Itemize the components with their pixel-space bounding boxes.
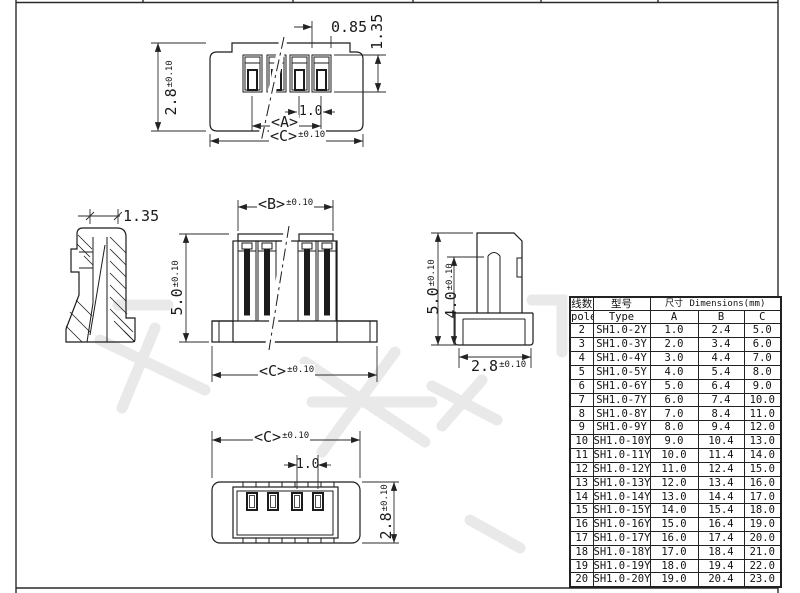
cell-type: SH1.0-20Y xyxy=(593,573,650,587)
dim-label-height-right: 5.0±0.10 xyxy=(426,256,442,318)
left-section-view-drawing xyxy=(66,228,135,342)
dim-label-pitch-bottom: 1.0 xyxy=(295,458,320,472)
cell-poles: 18 xyxy=(570,545,593,559)
cell-type: SH1.0-8Y xyxy=(593,407,650,421)
cell-dim-a: 3.0 xyxy=(650,351,698,365)
cell-type: SH1.0-11Y xyxy=(593,448,650,462)
cell-poles: 6 xyxy=(570,379,593,393)
section-hatching xyxy=(66,235,135,342)
cell-dim-b: 14.4 xyxy=(698,490,744,504)
cell-dim-b: 5.4 xyxy=(698,365,744,379)
cell-dim-c: 10.0 xyxy=(744,393,781,407)
cell-dim-c: 9.0 xyxy=(744,379,781,393)
dim-label-c-bottom: <C>±0.10 xyxy=(253,430,310,446)
cell-poles: 15 xyxy=(570,504,593,518)
cell-poles: 19 xyxy=(570,559,593,573)
spec-table-row: 13 SH1.0-13Y 12.0 13.4 16.0 xyxy=(570,476,781,490)
spec-table: 线数 型号 尺寸 Dimensions(mm) poles Type A B C… xyxy=(569,296,782,588)
cell-dim-c: 14.0 xyxy=(744,448,781,462)
spec-table-row: 19 SH1.0-19Y 18.0 19.4 22.0 xyxy=(570,559,781,573)
spec-table-row: 18 SH1.0-18Y 17.0 18.4 21.0 xyxy=(570,545,781,559)
dim-label-pin-height-top: 1.35 xyxy=(370,13,386,51)
cell-dim-b: 20.4 xyxy=(698,573,744,587)
cell-poles: 8 xyxy=(570,407,593,421)
cell-dim-c: 21.0 xyxy=(744,545,781,559)
cell-poles: 14 xyxy=(570,490,593,504)
spec-table-row: 20 SH1.0-20Y 19.0 20.4 23.0 xyxy=(570,573,781,587)
spec-table-body: 2 SH1.0-2Y 1.0 2.4 5.0 3 SH1.0-3Y 2.0 3.… xyxy=(570,324,781,587)
cell-dim-a: 4.0 xyxy=(650,365,698,379)
cell-dim-b: 13.4 xyxy=(698,476,744,490)
cell-dim-a: 9.0 xyxy=(650,435,698,449)
cell-dim-c: 17.0 xyxy=(744,490,781,504)
cell-type: SH1.0-16Y xyxy=(593,518,650,532)
cell-dim-c: 5.0 xyxy=(744,324,781,338)
cell-dim-a: 2.0 xyxy=(650,338,698,352)
cell-dim-b: 19.4 xyxy=(698,559,744,573)
cell-poles: 4 xyxy=(570,351,593,365)
cell-dim-c: 15.0 xyxy=(744,462,781,476)
spec-table-row: 5 SH1.0-5Y 4.0 5.4 8.0 xyxy=(570,365,781,379)
cell-type: SH1.0-15Y xyxy=(593,504,650,518)
spec-table-row: 7 SH1.0-7Y 6.0 7.4 10.0 xyxy=(570,393,781,407)
cell-dim-b: 6.4 xyxy=(698,379,744,393)
cell-dim-c: 23.0 xyxy=(744,573,781,587)
cell-type: SH1.0-12Y xyxy=(593,462,650,476)
cell-dim-a: 12.0 xyxy=(650,476,698,490)
cell-dim-b: 9.4 xyxy=(698,421,744,435)
left-view-dimensions xyxy=(78,209,122,224)
spec-table-row: 10 SH1.0-10Y 9.0 10.4 13.0 xyxy=(570,435,781,449)
spec-table-row: 2 SH1.0-2Y 1.0 2.4 5.0 xyxy=(570,324,781,338)
cell-dim-c: 13.0 xyxy=(744,435,781,449)
cell-poles: 12 xyxy=(570,462,593,476)
cell-type: SH1.0-6Y xyxy=(593,379,650,393)
cell-type: SH1.0-9Y xyxy=(593,421,650,435)
cell-dim-b: 8.4 xyxy=(698,407,744,421)
cell-dim-a: 13.0 xyxy=(650,490,698,504)
cell-poles: 11 xyxy=(570,448,593,462)
cell-dim-a: 15.0 xyxy=(650,518,698,532)
cell-dim-c: 22.0 xyxy=(744,559,781,573)
cell-dim-b: 4.4 xyxy=(698,351,744,365)
cell-dim-c: 7.0 xyxy=(744,351,781,365)
spec-table-row: 17 SH1.0-17Y 16.0 17.4 20.0 xyxy=(570,531,781,545)
bottom-view-drawing xyxy=(212,482,360,543)
dim-label-pin-width-top: 0.85 xyxy=(330,20,368,36)
cell-dim-c: 8.0 xyxy=(744,365,781,379)
spec-table-row: 15 SH1.0-15Y 14.0 15.4 18.0 xyxy=(570,504,781,518)
dim-label-b-front: <B>±0.10 xyxy=(257,197,314,213)
cell-dim-c: 20.0 xyxy=(744,531,781,545)
watermark xyxy=(100,300,562,548)
header-col-b: B xyxy=(698,310,744,323)
cell-poles: 2 xyxy=(570,324,593,338)
dim-label-depth-bottom: 2.8±0.10 xyxy=(379,481,395,543)
cell-type: SH1.0-17Y xyxy=(593,531,650,545)
dim-label-c-top: <C>±0.10 xyxy=(269,129,326,145)
cell-poles: 7 xyxy=(570,393,593,407)
cell-type: SH1.0-13Y xyxy=(593,476,650,490)
header-dimensions: 尺寸 Dimensions(mm) xyxy=(650,297,781,310)
dim-label-pitch-top: 1.0 xyxy=(298,105,323,119)
front-view-drawing xyxy=(212,226,377,350)
spec-table-row: 4 SH1.0-4Y 3.0 4.4 7.0 xyxy=(570,351,781,365)
header-col-c: C xyxy=(744,310,781,323)
cell-poles: 10 xyxy=(570,435,593,449)
cell-dim-c: 18.0 xyxy=(744,504,781,518)
cell-dim-a: 18.0 xyxy=(650,559,698,573)
cell-type: SH1.0-5Y xyxy=(593,365,650,379)
cell-dim-a: 1.0 xyxy=(650,324,698,338)
dim-label-height-front: 5.0±0.10 xyxy=(170,257,186,319)
cell-dim-b: 11.4 xyxy=(698,448,744,462)
cell-dim-c: 16.0 xyxy=(744,476,781,490)
cell-dim-c: 19.0 xyxy=(744,518,781,532)
cell-dim-c: 12.0 xyxy=(744,421,781,435)
cell-dim-a: 19.0 xyxy=(650,573,698,587)
cell-dim-b: 7.4 xyxy=(698,393,744,407)
cell-poles: 5 xyxy=(570,365,593,379)
cell-dim-a: 5.0 xyxy=(650,379,698,393)
engineering-drawing-sheet: 0.85 1.35 2.8±0.10 1.0 <A> <C>±0.10 1.35… xyxy=(0,0,800,593)
cell-type: SH1.0-2Y xyxy=(593,324,650,338)
cell-dim-b: 18.4 xyxy=(698,545,744,559)
cell-dim-a: 14.0 xyxy=(650,504,698,518)
cell-poles: 16 xyxy=(570,518,593,532)
cell-poles: 20 xyxy=(570,573,593,587)
header-col-a: A xyxy=(650,310,698,323)
cell-dim-b: 15.4 xyxy=(698,504,744,518)
cell-poles: 13 xyxy=(570,476,593,490)
dim-label-width-left-view: 1.35 xyxy=(122,209,160,225)
cell-dim-a: 10.0 xyxy=(650,448,698,462)
cell-type: SH1.0-14Y xyxy=(593,490,650,504)
right-side-view-drawing xyxy=(455,233,533,345)
header-type-zh: 型号 xyxy=(593,297,650,310)
cell-type: SH1.0-19Y xyxy=(593,559,650,573)
spec-header-row-1: 线数 型号 尺寸 Dimensions(mm) xyxy=(570,297,781,310)
cell-dim-c: 11.0 xyxy=(744,407,781,421)
cell-type: SH1.0-3Y xyxy=(593,338,650,352)
cell-poles: 9 xyxy=(570,421,593,435)
cell-dim-b: 3.4 xyxy=(698,338,744,352)
dim-label-inner-height-right: 4.0±0.10 xyxy=(444,260,460,322)
cell-type: SH1.0-10Y xyxy=(593,435,650,449)
cell-dim-a: 16.0 xyxy=(650,531,698,545)
cell-dim-c: 6.0 xyxy=(744,338,781,352)
spec-table-row: 8 SH1.0-8Y 7.0 8.4 11.0 xyxy=(570,407,781,421)
header-type-en: Type xyxy=(593,310,650,323)
cell-dim-b: 16.4 xyxy=(698,518,744,532)
cell-dim-b: 12.4 xyxy=(698,462,744,476)
cell-dim-a: 11.0 xyxy=(650,462,698,476)
spec-table-row: 6 SH1.0-6Y 5.0 6.4 9.0 xyxy=(570,379,781,393)
cell-dim-a: 6.0 xyxy=(650,393,698,407)
cell-dim-b: 10.4 xyxy=(698,435,744,449)
spec-table-row: 3 SH1.0-3Y 2.0 3.4 6.0 xyxy=(570,338,781,352)
spec-table-row: 16 SH1.0-16Y 15.0 16.4 19.0 xyxy=(570,518,781,532)
spec-table-row: 14 SH1.0-14Y 13.0 14.4 17.0 xyxy=(570,490,781,504)
cell-dim-a: 8.0 xyxy=(650,421,698,435)
cell-dim-b: 17.4 xyxy=(698,531,744,545)
cell-dim-a: 7.0 xyxy=(650,407,698,421)
dim-label-c-front: <C>±0.10 xyxy=(258,364,315,380)
header-poles-en: poles xyxy=(570,310,593,323)
spec-header-row-2: poles Type A B C xyxy=(570,310,781,323)
cell-poles: 17 xyxy=(570,531,593,545)
spec-table-row: 11 SH1.0-11Y 10.0 11.4 14.0 xyxy=(570,448,781,462)
cell-dim-b: 2.4 xyxy=(698,324,744,338)
cell-poles: 3 xyxy=(570,338,593,352)
header-poles-zh: 线数 xyxy=(570,297,593,310)
spec-table-row: 9 SH1.0-9Y 8.0 9.4 12.0 xyxy=(570,421,781,435)
dim-label-depth-right: 2.8±0.10 xyxy=(470,359,527,375)
spec-table-row: 12 SH1.0-12Y 11.0 12.4 15.0 xyxy=(570,462,781,476)
cell-type: SH1.0-7Y xyxy=(593,393,650,407)
cell-dim-a: 17.0 xyxy=(650,545,698,559)
cell-type: SH1.0-4Y xyxy=(593,351,650,365)
dim-label-depth-top: 2.8±0.10 xyxy=(164,57,180,119)
cell-type: SH1.0-18Y xyxy=(593,545,650,559)
